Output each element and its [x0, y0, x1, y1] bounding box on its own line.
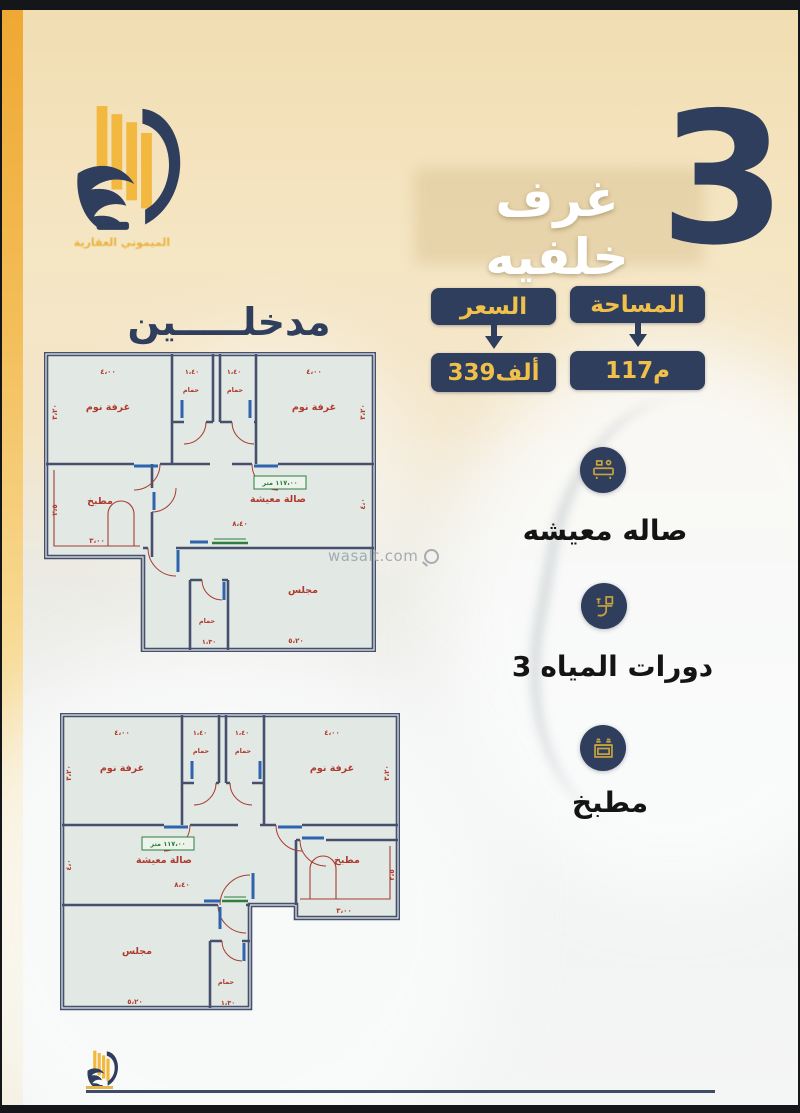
company-logo-icon — [58, 98, 208, 238]
plan1-dim: ٢،٥ — [51, 504, 59, 515]
down-arrow-icon — [485, 325, 503, 351]
plan1-living: صالة معيشة — [250, 494, 306, 505]
plan2-bath-3: حمام — [218, 978, 235, 986]
plan2-dim: ٨،٤٠ — [174, 881, 189, 889]
price-value-pill: 339ألف — [431, 353, 556, 392]
plan2-majlis: مجلس — [122, 946, 152, 957]
plan1-dim: ٤،٠٠ — [100, 368, 115, 376]
plan1-dim: ٣،٠٠ — [89, 537, 104, 545]
plan2-bath-2: حمام — [235, 747, 252, 755]
footer-logo-icon — [82, 1048, 126, 1090]
plan1-dim: ٤،٠ — [359, 498, 367, 509]
plan1-dim: ٣،٢٠ — [359, 404, 367, 419]
plan1-dim: ٣،٢٠ — [51, 404, 59, 419]
living-feature-label: صاله معيشه — [505, 514, 705, 547]
plan2-dim: ٤،٠٠ — [114, 729, 129, 737]
footer-logo — [82, 1048, 126, 1090]
sofa-icon — [590, 457, 617, 484]
plan1-dim: ١،٤٠ — [227, 368, 241, 376]
plan2-bath-1: حمام — [193, 747, 210, 755]
company-logo — [58, 98, 208, 238]
area-label-pill: المساحة — [570, 286, 705, 323]
entrances-title: مدخلـــــين — [116, 300, 342, 344]
flyer-frame: الميموني العقارية 3 غرف خلفيه المساحة ال… — [0, 0, 800, 1113]
plan2-dim: ٢،٥ — [388, 869, 396, 880]
plan1-bedroom-left: غرفة نوم — [86, 402, 130, 413]
bath-text: دورات المياه — [540, 650, 713, 683]
company-name: الميموني العقارية — [62, 236, 182, 249]
watermark-text: wasalt.com — [328, 547, 418, 565]
toilet-icon — [591, 593, 618, 620]
plan2-dim: ٤،٠٠ — [324, 729, 339, 737]
plan1-bath-3: حمام — [199, 617, 216, 625]
plan2-bedroom-right: غرفة نوم — [310, 763, 354, 774]
plan1-kitchen: مطبخ — [87, 496, 113, 507]
plan1-dim: ٥،٢٠ — [288, 637, 303, 645]
footer-accent-dash — [86, 1086, 113, 1089]
plan1-dim: ٤،٠٠ — [306, 368, 321, 376]
floorplan-top: ١١٧،٠٠ متر ٤،٠٠ ١،٤٠ ١،٤٠ ٤،٠٠ غرفة نوم … — [44, 352, 376, 652]
plan1-bath-1: حمام — [183, 386, 200, 394]
plan2-kitchen: مطبخ — [334, 855, 360, 866]
kitchen-feature-label: مطبخ — [530, 786, 690, 819]
bath-feature-label: 3 دورات المياه — [505, 650, 720, 683]
living-feature-circle — [580, 447, 626, 493]
page-title: غرف خلفيه — [424, 170, 690, 286]
plan2-dim: ٣،٢٠ — [65, 765, 73, 780]
floorplan-bottom: ١١٧،٠٠ متر ٤،٠٠ ١،٤٠ ١،٤٠ ٤،٠٠ غرفة نوم … — [60, 713, 400, 1013]
magnifier-icon — [424, 549, 439, 564]
plan2-bedroom-left: غرفة نوم — [100, 763, 144, 774]
plan2-dim: ٣،٢٠ — [383, 765, 391, 780]
plan1-dim: ١،٤٠ — [185, 368, 199, 376]
plan2-area-badge: ١١٧،٠٠ متر — [149, 840, 185, 848]
plan1-bedroom-right: غرفة نوم — [292, 402, 336, 413]
plan1-majlis: مجلس — [288, 585, 318, 596]
down-arrow-icon — [629, 323, 647, 349]
footer-divider-line — [86, 1090, 715, 1093]
bath-feature-circle — [581, 583, 627, 629]
plan1-dim: ١،٣٠ — [202, 638, 216, 646]
plan1-area-badge: ١١٧،٠٠ متر — [261, 479, 297, 487]
bath-count: 3 — [512, 650, 531, 683]
stove-icon — [590, 735, 617, 762]
plan2-dim: ١،٣٠ — [221, 999, 235, 1007]
plan2-dim: ١،٤٠ — [193, 729, 207, 737]
price-label-pill: السعر — [431, 288, 556, 325]
area-value-pill: 117م — [570, 351, 705, 390]
kitchen-feature-circle — [580, 725, 626, 771]
plan1-bath-2: حمام — [227, 386, 244, 394]
plan1-dim: ٨،٤٠ — [232, 520, 247, 528]
plan2-dim: ٥،٢٠ — [127, 998, 142, 1006]
watermark: wasalt.com — [328, 547, 439, 565]
plan2-dim: ١،٤٠ — [235, 729, 249, 737]
plan2-living: صالة معيشة — [136, 855, 192, 866]
plan2-dim: ٣،٠٠ — [336, 907, 351, 915]
plan2-dim: ٤،٠ — [65, 859, 73, 870]
